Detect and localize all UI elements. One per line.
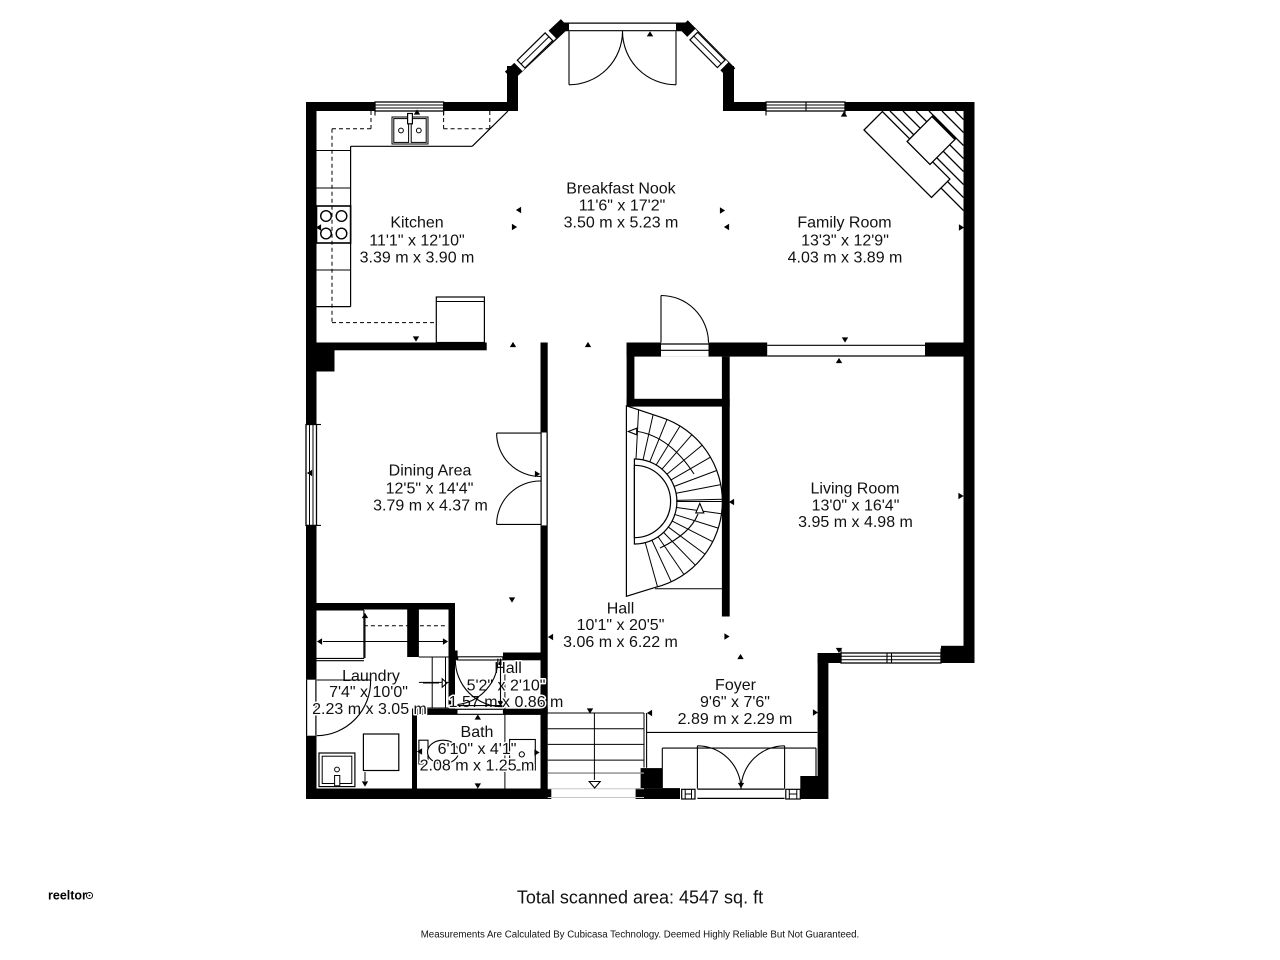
svg-text:2.08 m x 1.25 m: 2.08 m x 1.25 m (420, 758, 535, 775)
svg-text:Kitchen: Kitchen (390, 215, 443, 232)
svg-text:Measurements Are Calculated By: Measurements Are Calculated By Cubicasa … (421, 930, 860, 941)
svg-text:13'3" x 12'9": 13'3" x 12'9" (801, 233, 889, 250)
svg-text:Breakfast Nook: Breakfast Nook (566, 181, 676, 198)
svg-text:3.50 m x 5.23 m: 3.50 m x 5.23 m (564, 215, 679, 232)
svg-text:Foyer: Foyer (715, 677, 757, 694)
svg-text:3.79 m x 4.37 m: 3.79 m x 4.37 m (373, 498, 488, 515)
svg-text:9'6" x 7'6": 9'6" x 7'6" (700, 694, 770, 711)
svg-text:3.39 m x 3.90 m: 3.39 m x 3.90 m (360, 250, 475, 267)
svg-text:3.06 m x 6.22 m: 3.06 m x 6.22 m (563, 634, 678, 651)
svg-text:Total scanned area: 4547 sq. f: Total scanned area: 4547 sq. ft (517, 888, 763, 908)
svg-text:4.03 m x 3.89 m: 4.03 m x 3.89 m (788, 250, 903, 267)
svg-text:10'1" x 20'5": 10'1" x 20'5" (577, 617, 665, 634)
svg-text:3.95 m x 4.98 m: 3.95 m x 4.98 m (798, 514, 913, 531)
svg-text:11'1" x 12'10": 11'1" x 12'10" (369, 233, 464, 250)
svg-text:2.23 m x 3.05 m: 2.23 m x 3.05 m (312, 701, 427, 718)
svg-text:2.89 m x 2.29 m: 2.89 m x 2.29 m (678, 711, 793, 728)
svg-text:Hall: Hall (607, 601, 635, 618)
svg-text:reeltor: reeltor (48, 889, 87, 903)
svg-text:Living Room: Living Room (811, 481, 900, 498)
svg-text:6'10" x 4'1": 6'10" x 4'1" (438, 741, 517, 758)
svg-text:11'6" x 17'2": 11'6" x 17'2" (579, 198, 666, 215)
svg-text:Bath: Bath (461, 724, 494, 741)
svg-text:5'2" x 2'10": 5'2" x 2'10" (467, 678, 546, 695)
svg-text:Family Room: Family Room (797, 215, 891, 232)
svg-text:13'0" x 16'4": 13'0" x 16'4" (812, 498, 900, 515)
svg-text:12'5" x 14'4": 12'5" x 14'4" (386, 481, 474, 498)
svg-text:Dining Area: Dining Area (389, 463, 472, 480)
